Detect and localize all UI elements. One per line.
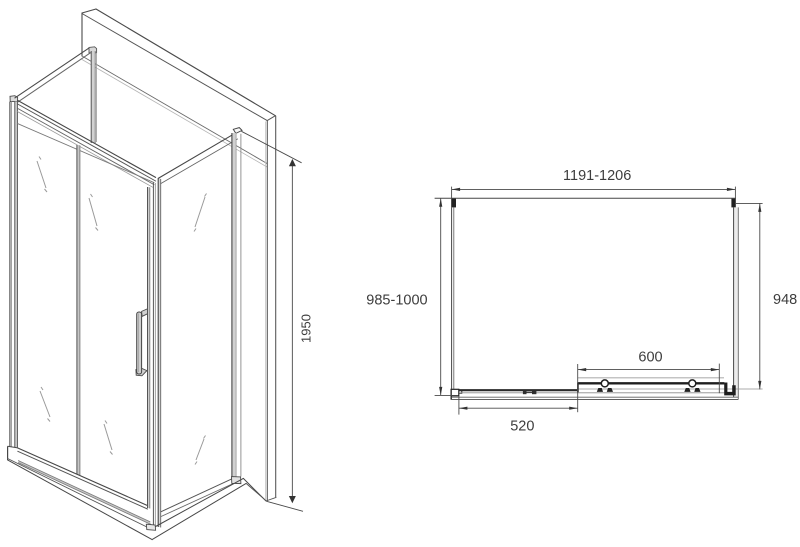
svg-text:520: 520 (510, 419, 534, 435)
svg-text:948: 948 (773, 292, 797, 308)
svg-text:1950: 1950 (299, 314, 314, 343)
svg-text:1191-1206: 1191-1206 (563, 168, 631, 184)
svg-text:985-1000: 985-1000 (366, 292, 427, 308)
svg-text:600: 600 (638, 349, 662, 365)
